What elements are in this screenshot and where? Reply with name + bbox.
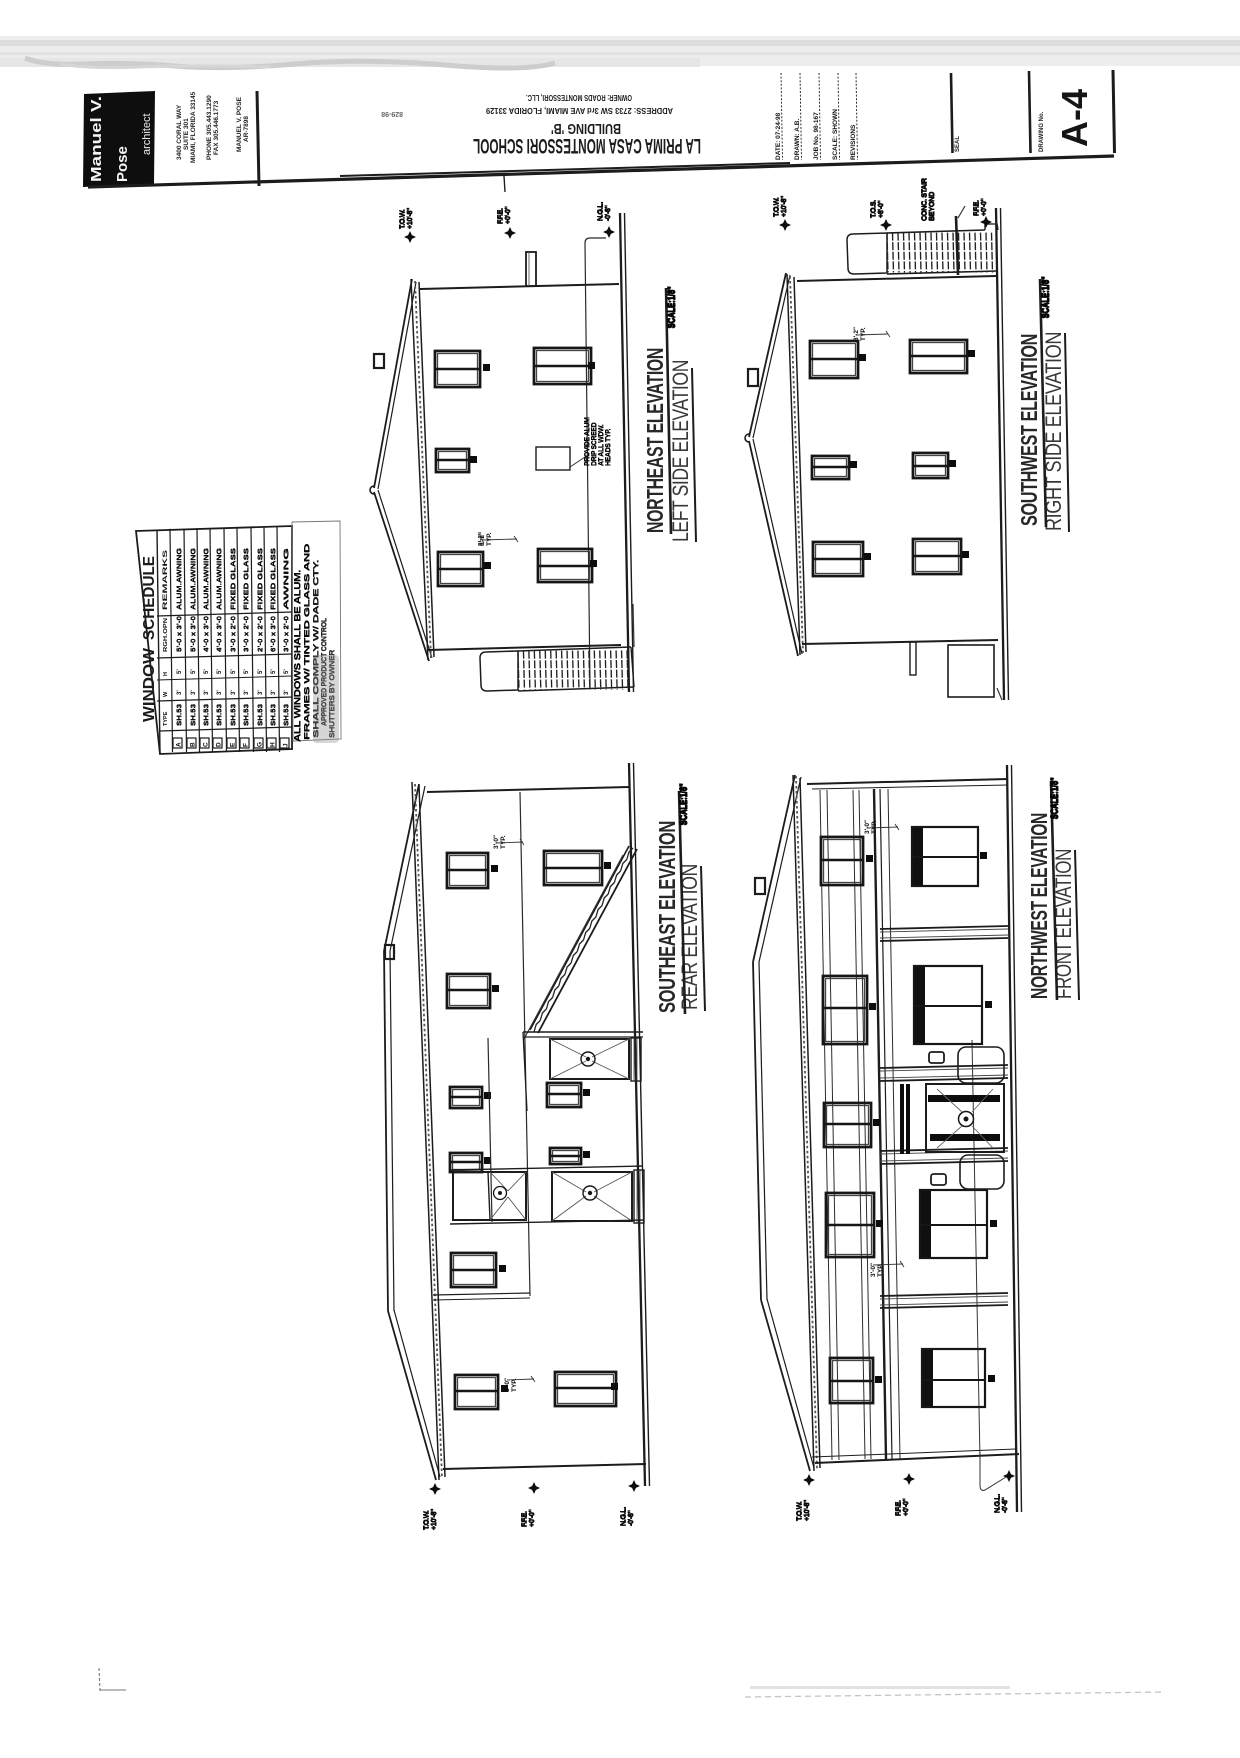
svg-text:SCALE:1/8": SCALE:1/8"	[1041, 276, 1052, 318]
svg-text:SCALE:1/8": SCALE:1/8"	[667, 286, 678, 328]
svg-text:+10'-8": +10'-8"	[406, 207, 415, 229]
svg-text:+10'-8": +10'-8"	[803, 1499, 812, 1521]
svg-text:Pose: Pose	[114, 146, 131, 182]
svg-text:H: H	[270, 742, 277, 747]
svg-text:5': 5'	[244, 669, 250, 674]
svg-text:F: F	[243, 743, 250, 747]
svg-text:C: C	[203, 742, 210, 747]
svg-text:+0'-0": +0'-0"	[504, 205, 513, 224]
svg-text:G: G	[257, 742, 264, 747]
svg-text:3': 3'	[244, 690, 250, 695]
svg-text:H: H	[163, 672, 169, 676]
svg-text:3': 3'	[191, 690, 197, 695]
svg-text:AWNING: AWNING	[284, 548, 291, 610]
svg-text:WINDOW: WINDOW	[141, 647, 158, 722]
svg-text:3'-0": 3'-0"	[864, 820, 871, 834]
svg-text:SCALE:1/8": SCALE:1/8"	[679, 783, 690, 825]
svg-text:A: A	[176, 742, 183, 747]
svg-text:3': 3'	[204, 690, 210, 695]
svg-text:+10'-8": +10'-8"	[430, 1508, 439, 1530]
svg-text:SH.53: SH.53	[232, 703, 238, 726]
svg-text:PHONE 305.443.1290: PHONE 305.443.1290	[206, 95, 213, 160]
svg-text:ALUM.AWNING: ALUM.AWNING	[191, 548, 198, 610]
svg-text:3': 3'	[217, 690, 223, 695]
svg-text:TYP.: TYP.	[877, 1263, 884, 1277]
svg-text:MANUEL V. POSE: MANUEL V. POSE	[236, 96, 243, 152]
svg-text:TYP.: TYP.	[511, 1378, 518, 1392]
svg-text:B: B	[190, 742, 197, 747]
svg-text:SCHEDULE: SCHEDULE	[141, 556, 158, 640]
svg-text:-0'-8": -0'-8"	[627, 1509, 636, 1526]
svg-text:SOUTHWEST ELEVATION: SOUTHWEST ELEVATION	[1016, 334, 1042, 526]
svg-text:TYPE: TYPE	[163, 711, 169, 726]
svg-text:5': 5'	[284, 669, 290, 674]
svg-text:+10'-8": +10'-8"	[780, 195, 789, 217]
svg-text:DRAWN: A.B.: DRAWN: A.B.	[794, 119, 801, 160]
svg-text:8'-2": 8'-2"	[853, 327, 860, 341]
svg-text:-0'-8": -0'-8"	[604, 204, 613, 221]
svg-text:5': 5'	[258, 669, 264, 674]
svg-text:3'-0": 3'-0"	[504, 1378, 511, 1392]
svg-text:TYP.: TYP.	[871, 820, 878, 834]
svg-text:DATE: 07-24-98: DATE: 07-24-98	[775, 112, 782, 160]
svg-text:NORTHEAST ELEVATION: NORTHEAST ELEVATION	[642, 348, 668, 533]
svg-text:SH.53: SH.53	[192, 703, 198, 726]
svg-text:3'-0 x 2'-0: 3'-0 x 2'-0	[285, 615, 291, 652]
svg-text:SUITE 301: SUITE 301	[183, 118, 190, 150]
svg-text:ALUM.AWNING: ALUM.AWNING	[217, 548, 224, 610]
svg-text:RGH.OPN: RGH.OPN	[163, 618, 169, 652]
svg-text:3': 3'	[177, 690, 183, 695]
svg-text:3400 CORAL WAY: 3400 CORAL WAY	[176, 104, 183, 160]
svg-text:5'-0 x 3'-0: 5'-0 x 3'-0	[192, 615, 198, 652]
svg-text:FIXED GLASS: FIXED GLASS	[271, 548, 278, 610]
svg-text:+8'-0": +8'-0"	[877, 199, 886, 218]
svg-text:4'-0 x 3'-0: 4'-0 x 3'-0	[205, 615, 211, 652]
svg-text:5': 5'	[204, 669, 210, 674]
svg-text:TYP.: TYP.	[486, 532, 493, 546]
svg-text:MIAMI, FLORIDA 33145: MIAMI, FLORIDA 33145	[190, 91, 197, 163]
svg-text:REVISIONS: REVISIONS	[850, 124, 857, 160]
svg-text:BUILDING 'B': BUILDING 'B'	[551, 120, 621, 137]
svg-text:FIXED GLASS: FIXED GLASS	[231, 548, 238, 610]
svg-text:FIXED GLASS: FIXED GLASS	[258, 548, 265, 610]
svg-text:-0'-8": -0'-8"	[1001, 1496, 1010, 1513]
svg-text:+0'-0": +0'-0"	[528, 1508, 537, 1527]
svg-text:TYP.: TYP.	[860, 327, 867, 341]
svg-text:6'-0 x 3'-0: 6'-0 x 3'-0	[272, 615, 278, 652]
svg-text:SH.53: SH.53	[218, 703, 224, 726]
svg-text:5': 5'	[177, 669, 183, 674]
svg-text:3': 3'	[231, 690, 237, 695]
svg-text:TYP.: TYP.	[500, 835, 507, 849]
svg-text:+0'-0": +0'-0"	[902, 1497, 911, 1516]
svg-text:A-4: A-4	[1054, 89, 1095, 147]
svg-text:JOB No. 98-167: JOB No. 98-167	[813, 112, 820, 160]
svg-text:SH.53: SH.53	[205, 703, 211, 726]
svg-text:ALUM.AWNING: ALUM.AWNING	[204, 548, 211, 610]
svg-text:5': 5'	[191, 669, 197, 674]
svg-text:5'-0 x 3'-0: 5'-0 x 3'-0	[178, 615, 184, 652]
svg-text:architect: architect	[141, 113, 153, 155]
svg-text:D: D	[216, 742, 223, 747]
svg-text:SEAL: SEAL	[955, 136, 961, 152]
svg-text:ADDRESS: 2733 SW 3rd AVE MIAM: ADDRESS: 2733 SW 3rd AVE MIAMI, FLORIDA …	[486, 106, 673, 116]
svg-text:SH.53: SH.53	[259, 703, 265, 726]
svg-text:SH.53: SH.53	[245, 703, 251, 726]
svg-text:AR-7898: AR-7898	[243, 116, 250, 142]
svg-text:3'-0": 3'-0"	[493, 835, 500, 849]
svg-text:E: E	[230, 742, 237, 747]
svg-text:BEYOND: BEYOND	[928, 191, 937, 221]
svg-text:2'-0 x 2'-0: 2'-0 x 2'-0	[259, 615, 265, 652]
svg-text:OWNER: ROADS MONTESSORI, LLC.: OWNER: ROADS MONTESSORI, LLC.	[526, 93, 632, 103]
svg-text:J: J	[283, 743, 290, 747]
svg-text:+0'-0": +0'-0"	[980, 197, 989, 216]
svg-text:3'-0 x 2'-0: 3'-0 x 2'-0	[245, 615, 251, 652]
svg-text:3'-0 x 2'-0: 3'-0 x 2'-0	[232, 615, 238, 652]
svg-text:5': 5'	[231, 669, 237, 674]
svg-text:SH.53: SH.53	[285, 703, 291, 726]
svg-text:NORTHWEST ELEVATION: NORTHWEST ELEVATION	[1026, 813, 1052, 999]
svg-text:SCALE:1/8": SCALE:1/8"	[1050, 777, 1061, 819]
svg-text:FAX 305.446.1773: FAX 305.446.1773	[213, 100, 220, 155]
svg-text:3': 3'	[258, 690, 264, 695]
svg-text:FIXED GLASS: FIXED GLASS	[244, 548, 251, 610]
svg-text:5': 5'	[217, 669, 223, 674]
svg-text:3'-0": 3'-0"	[870, 1263, 877, 1277]
svg-text:ALUM.AWNING: ALUM.AWNING	[177, 548, 184, 610]
svg-text:5': 5'	[271, 669, 277, 674]
svg-text:Manuel V.: Manuel V.	[88, 96, 105, 182]
svg-text:3': 3'	[271, 690, 277, 695]
svg-text:SCALE: SHOWN: SCALE: SHOWN	[832, 109, 839, 160]
svg-text:SH.53: SH.53	[178, 703, 184, 726]
svg-text:W: W	[163, 691, 169, 697]
svg-text:REMARKS: REMARKS	[163, 550, 169, 610]
svg-text:829-98: 829-98	[381, 110, 403, 117]
svg-text:3': 3'	[284, 690, 290, 695]
svg-text:HEADS TYP.: HEADS TYP.	[606, 428, 613, 466]
svg-text:DRAWING No.: DRAWING No.	[1039, 111, 1045, 152]
svg-text:4'-0 x 3'-0: 4'-0 x 3'-0	[218, 615, 224, 652]
svg-text:SH.53: SH.53	[272, 703, 278, 726]
